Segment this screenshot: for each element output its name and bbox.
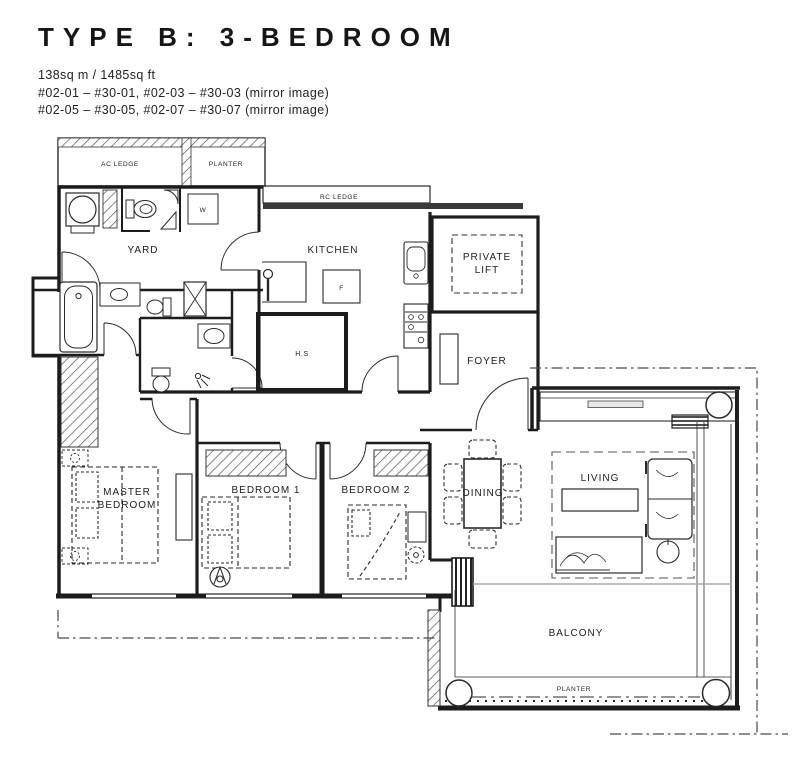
label-balcony: BALCONY	[549, 628, 604, 639]
bathtub	[60, 282, 97, 352]
floor-plan-svg: AC LEDGE PLANTER RC LEDGE	[0, 0, 800, 782]
master-toilet	[147, 298, 171, 316]
master-bedroom: MASTER BEDROOM	[61, 357, 192, 564]
ceiling-symbol-1	[210, 567, 230, 587]
side-table	[657, 539, 679, 563]
washer-bay: W	[188, 194, 218, 224]
label-dining: DINING	[463, 488, 504, 499]
hob	[404, 304, 428, 348]
coffee-table	[562, 489, 638, 511]
kitchen-sink-counter	[262, 262, 306, 302]
master-wardrobe	[61, 357, 98, 447]
living-rug	[552, 452, 694, 578]
windows-bottom	[92, 592, 426, 600]
planter-strip-lines	[697, 422, 704, 677]
common-bath	[152, 324, 230, 392]
ceiling-symbol-2	[408, 547, 424, 563]
label-ac-ledge: AC LEDGE	[101, 161, 139, 168]
label-bedroom1: BEDROOM 1	[231, 485, 300, 496]
window-shelf	[588, 401, 643, 408]
vanity-sink	[100, 283, 140, 306]
master-bed	[72, 467, 158, 563]
foyer: FOYER	[440, 334, 507, 384]
ac-ledge-planter-strip: AC LEDGE PLANTER	[58, 138, 265, 186]
bath2-toilet	[152, 368, 170, 392]
yard-cabinet	[103, 190, 117, 228]
label-planter-top: PLANTER	[209, 161, 243, 168]
label-master-1: MASTER	[103, 487, 151, 498]
tv-console	[556, 537, 642, 573]
shaft-box	[184, 282, 206, 316]
private-lift: PRIVATE LIFT	[452, 235, 522, 293]
wc-door-leaf	[161, 212, 176, 229]
planter-pot-top	[706, 392, 732, 418]
shower-head	[195, 373, 210, 388]
wc-room	[122, 188, 180, 232]
household-shelter: H.S	[258, 314, 346, 390]
kitchen-wall-sink	[404, 242, 428, 284]
label-planter-balcony: PLANTER	[557, 686, 591, 693]
label-yard: YARD	[127, 245, 158, 256]
bedroom-1: BEDROOM 1	[202, 450, 301, 587]
label-master-2: BEDROOM	[98, 500, 157, 511]
master-bench	[176, 474, 192, 540]
planter-pot-left	[446, 680, 472, 706]
bedroom1-bed	[202, 497, 290, 568]
kitchen: KITCHEN F H.S	[258, 242, 428, 390]
washing-machine	[66, 193, 99, 233]
label-living: LIVING	[581, 473, 620, 484]
sofa	[646, 459, 692, 539]
floorplan-page: { "header": { "title": "TYPE B: 3-BEDROO…	[0, 0, 800, 782]
bath2-sink	[198, 324, 230, 348]
rc-ledge: RC LEDGE	[263, 186, 523, 209]
fridge: F	[323, 270, 360, 303]
dining: DINING	[444, 440, 521, 548]
label-fridge: F	[339, 285, 344, 292]
label-hs: H.S	[295, 351, 308, 358]
label-washer: W	[200, 207, 207, 214]
label-kitchen: KITCHEN	[308, 245, 359, 256]
balcony: BALCONY PLANTER	[446, 584, 731, 707]
corner-sink	[164, 190, 178, 204]
yard: W YARD	[66, 188, 218, 256]
ac-unit-box	[672, 415, 708, 428]
bedroom2-bed	[348, 505, 406, 579]
label-foyer: FOYER	[467, 356, 506, 367]
bedroom1-wardrobe	[206, 450, 286, 476]
label-private-lift-1: PRIVATE	[463, 252, 511, 263]
bedroom2-wardrobe	[374, 450, 428, 476]
bedroom2-cabinet	[408, 512, 426, 542]
label-bedroom2: BEDROOM 2	[341, 485, 410, 496]
label-private-lift-2: LIFT	[475, 265, 500, 276]
planter-pot-right	[703, 680, 730, 707]
walls	[33, 186, 740, 710]
toilet	[126, 200, 156, 218]
label-rc-ledge: RC LEDGE	[320, 194, 358, 201]
